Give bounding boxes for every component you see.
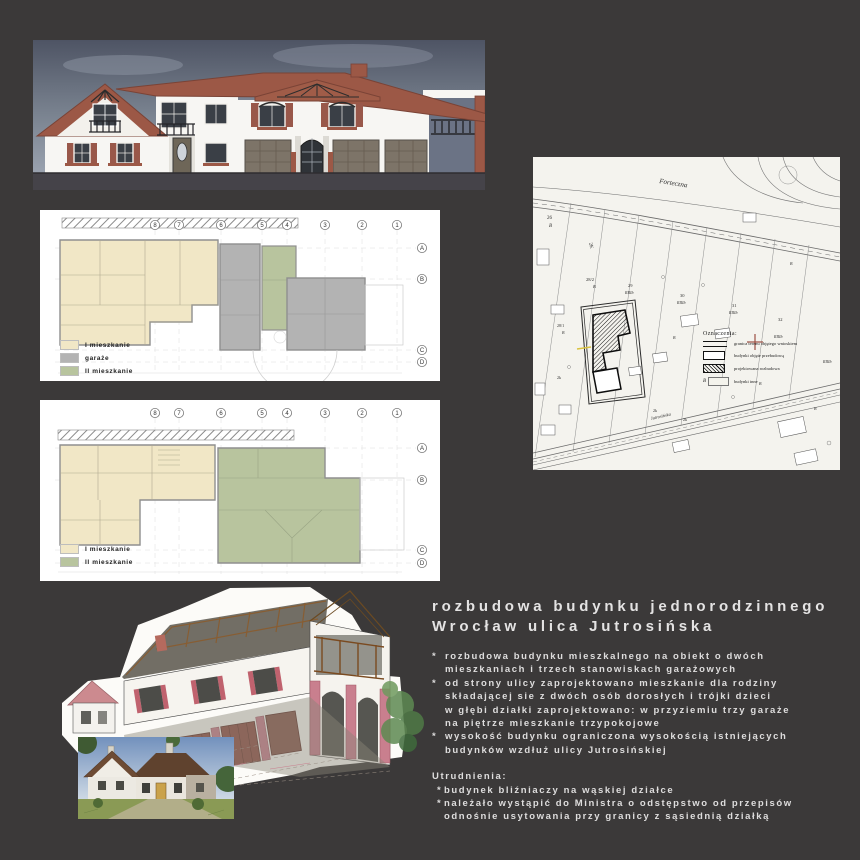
- difficulty-line: należało wystąpić do Ministra o odstępst…: [444, 797, 793, 810]
- map-legend-row: budynki objęte przebudową: [703, 351, 829, 360]
- site-plan-panel: Forteczna26B2K28/2B28/1B29RIIIb30RIIIb31…: [533, 157, 840, 470]
- bullet-line: budynków wzdłuż ulicy Jutrosińskiej: [445, 744, 787, 757]
- bullet-marker: *: [432, 650, 445, 677]
- map-label: 26: [547, 216, 553, 221]
- difficulty-line: odnośnie usytowania przy granicy z sąsie…: [444, 810, 793, 823]
- front-elevation-panel: [33, 40, 485, 190]
- terrace-outline: [365, 285, 403, 345]
- legend-swatch: [60, 340, 79, 350]
- bullet-line: mieszkaniach i trzech stanowiskach garaż…: [445, 663, 765, 676]
- map-label: B: [790, 261, 793, 266]
- map-label: 2K: [587, 242, 594, 250]
- legend-row: I mieszkanie: [60, 544, 133, 554]
- map-label: B: [673, 335, 676, 340]
- grid-label: D: [420, 561, 425, 567]
- map-legend-row: granica terenu objętego wnioskiem: [703, 341, 829, 347]
- bullet-marker: *: [437, 797, 444, 824]
- map-legend-row: B budynki inne: [703, 377, 829, 386]
- project-title-line2: Wrocław ulica Jutrosińska: [432, 617, 856, 637]
- legend-label: I mieszkanie: [85, 546, 131, 553]
- bullet-line: składającej sie z dwóch osób dorosłych i…: [445, 690, 790, 703]
- map-label: B: [814, 406, 817, 411]
- grid-label: C: [420, 348, 425, 354]
- grid-label: A: [420, 446, 424, 452]
- difficulties-header: Utrudnienia:: [432, 770, 856, 783]
- project-bullet: * rozbudowa budynku mieszkalnego na obie…: [432, 650, 856, 677]
- existing-house-photo: [78, 737, 234, 819]
- boundary-hatch: [58, 430, 294, 440]
- parcel-lines: [535, 203, 809, 457]
- planned-extension-building: [593, 310, 630, 372]
- map-legend-label: granica terenu objętego wnioskiem: [734, 341, 797, 346]
- grid-label: A: [420, 246, 424, 252]
- bullet-line: od strony ulicy zaprojektowano mieszkani…: [445, 677, 790, 690]
- roads-top-right: [723, 157, 840, 209]
- project-bullet: * od strony ulicy zaprojektowano mieszka…: [432, 677, 856, 731]
- difficulty-line: budynek bliźniaczy na wąskiej działce: [444, 784, 674, 797]
- map-label: 30: [680, 293, 685, 298]
- map-legend: Oznaczenia: granica terenu objętego wnio…: [703, 331, 829, 390]
- floor-plan-upper-panel: 87654321ABCD I mieszkanie II mieszkanie: [40, 400, 440, 581]
- legend-label: garaże: [85, 355, 109, 362]
- map-label: 28/2: [586, 277, 594, 282]
- hatched-rect-symbol: [703, 364, 729, 373]
- bullet-marker: *: [432, 730, 445, 757]
- legend-row: II mieszkanie: [60, 557, 133, 567]
- grid-label: C: [420, 548, 425, 554]
- driveway-arc: [253, 350, 337, 381]
- ground: [33, 173, 485, 190]
- bullet-line: rozbudowa budynku mieszkalnego na obiekt…: [445, 650, 765, 663]
- map-legend-label: budynki objęte przebudową: [734, 353, 784, 358]
- map-label: B: [549, 224, 552, 229]
- map-label: 28/1: [557, 323, 564, 328]
- light-rect-symbol: B: [703, 377, 729, 386]
- legend-swatch: [60, 557, 79, 567]
- legend-row: II mieszkanie: [60, 366, 133, 376]
- apartment-1-area: [60, 445, 215, 545]
- map-label: RIIIb: [676, 300, 685, 305]
- map-label: RIIIb: [624, 290, 633, 295]
- outline-rect-symbol: [703, 351, 729, 360]
- map-label: 31: [732, 303, 737, 308]
- project-description: rozbudowa budynku jednorodzinnego Wrocła…: [432, 597, 856, 824]
- bullet-line: na piętrze mieszkanie trzypokojowe: [445, 717, 790, 730]
- legend-swatch: [60, 366, 79, 376]
- presentation-board: 87654321ABCD I mieszkanie garaże II mies…: [0, 0, 860, 860]
- map-label: 29: [628, 283, 633, 288]
- front-elevation-rendering: [33, 40, 485, 190]
- legend-swatch: [60, 353, 79, 363]
- map-label: 2k: [683, 417, 687, 422]
- arched-entrance: [291, 136, 333, 173]
- lower-window: [205, 143, 227, 163]
- map-label: Forteczna: [658, 177, 689, 190]
- legend-label: II mieszkanie: [85, 368, 133, 375]
- map-label: 2k: [653, 408, 657, 413]
- highlight-mark: [577, 347, 591, 349]
- reconstructed-building: [593, 368, 621, 393]
- legend-row: I mieszkanie: [60, 340, 133, 350]
- bullet-marker: *: [437, 784, 444, 797]
- apartment-1-area: [60, 240, 218, 345]
- project-bullet: * wysokość budynku ograniczona wysokości…: [432, 730, 856, 757]
- garage-area-1: [220, 244, 260, 350]
- plan2-legend: I mieszkanie II mieszkanie: [60, 544, 133, 567]
- difficulty-item: * budynek bliźniaczy na wąskiej działce: [432, 784, 856, 797]
- difficulty-item: * należało wystąpić do Ministra o odstęp…: [432, 797, 856, 824]
- terrace-outline: [360, 478, 404, 550]
- chimney: [351, 64, 367, 77]
- legend-label: I mieszkanie: [85, 342, 131, 349]
- legend-swatch: [60, 544, 79, 554]
- grid-label: B: [420, 478, 424, 484]
- map-label: B: [593, 284, 596, 289]
- existing-house-photo-image: [78, 737, 234, 819]
- project-title-line1: rozbudowa budynku jednorodzinnego: [432, 597, 856, 617]
- map-legend-label: projektowana rozbudowa: [734, 366, 780, 371]
- bullet-marker: *: [432, 677, 445, 731]
- legend-label: II mieszkanie: [85, 559, 133, 566]
- map-label: B: [562, 330, 565, 335]
- bullet-line: w głębi działki zaprojektowano: w przyzi…: [445, 704, 790, 717]
- floor-plan-ground-panel: 87654321ABCD I mieszkanie garaże II mies…: [40, 210, 440, 381]
- map-label: 32: [778, 317, 783, 322]
- plan1-legend: I mieszkanie garaże II mieszkanie: [60, 340, 133, 376]
- double-line-symbol: [703, 341, 729, 347]
- project-bullets: * rozbudowa budynku mieszkalnego na obie…: [432, 650, 856, 824]
- map-legend-label: budynki inne: [734, 379, 758, 384]
- map-label: 2k: [557, 375, 561, 380]
- apartment-2-area: [218, 448, 360, 563]
- project-title: rozbudowa budynku jednorodzinnego Wrocła…: [432, 597, 856, 637]
- site-plan-map: Forteczna26B2K28/2B28/1B29RIIIb30RIIIb31…: [533, 157, 840, 470]
- map-label: RIIIb: [728, 310, 737, 315]
- grid-label: B: [420, 277, 424, 283]
- bullet-line: wysokość budynku ograniczona wysokością …: [445, 730, 787, 743]
- map-legend-row: projektowana rozbudowa: [703, 364, 829, 373]
- grid-label: D: [420, 360, 425, 366]
- map-legend-title: Oznaczenia:: [703, 331, 829, 337]
- legend-row: garaże: [60, 353, 133, 363]
- garage-doors: [245, 140, 427, 173]
